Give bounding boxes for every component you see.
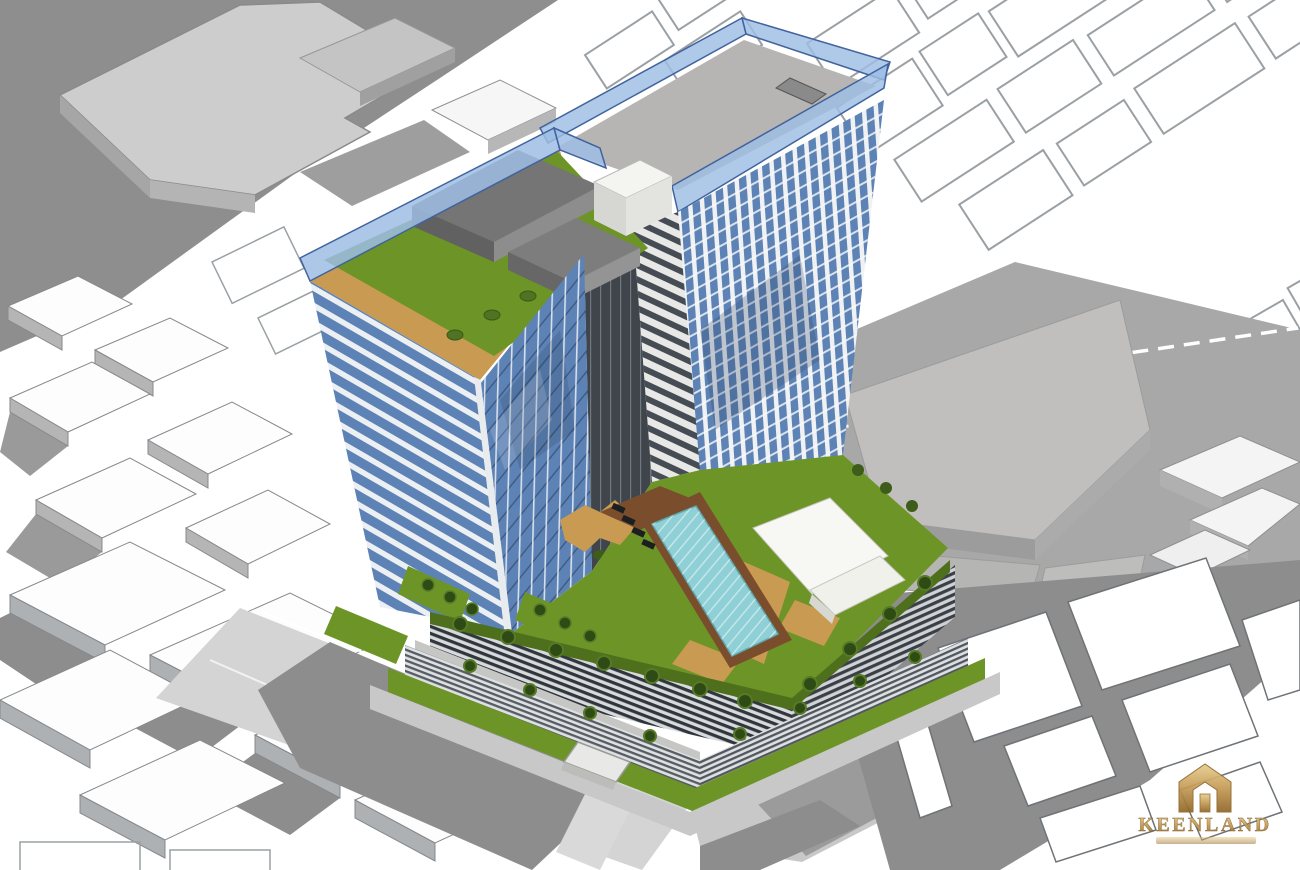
tagline-blurred-band [1156, 837, 1256, 844]
render-canvas: KEENLAND [0, 0, 1300, 870]
wordmark: KEENLAND [1138, 814, 1271, 836]
architectural-render: KEENLAND [0, 0, 1300, 870]
